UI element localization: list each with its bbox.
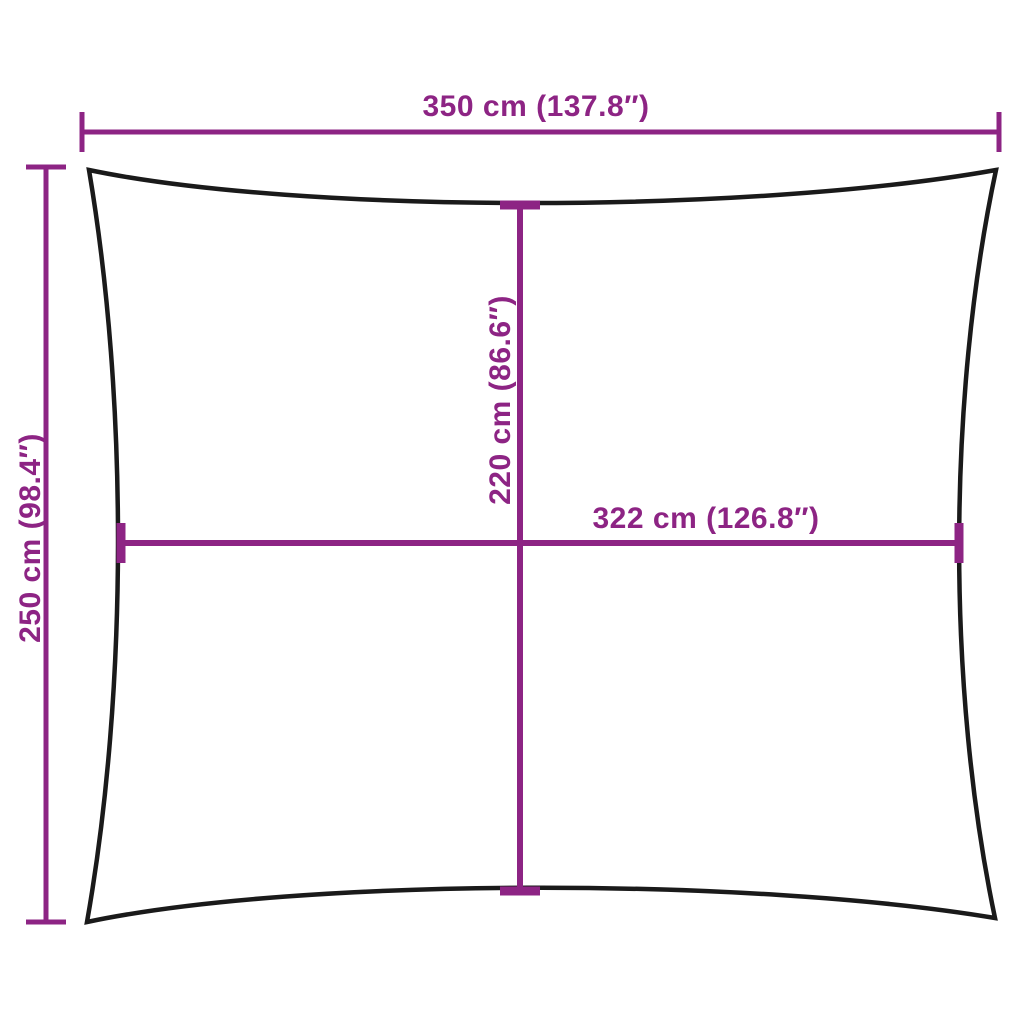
inner-width-dimension: [121, 523, 959, 563]
dimension-diagram: 350 cm (137.8″) 250 cm (98.4″) 220 cm (8…: [0, 0, 1024, 1024]
inner-width-dimension-label: 322 cm (126.8″): [592, 504, 819, 534]
height-dimension-label: 250 cm (98.4″): [16, 433, 46, 643]
inner-height-dimension-label: 220 cm (86.6″): [486, 295, 516, 505]
diagram-drawing: [0, 0, 1024, 1024]
width-dimension-label: 350 cm (137.8″): [422, 92, 649, 122]
